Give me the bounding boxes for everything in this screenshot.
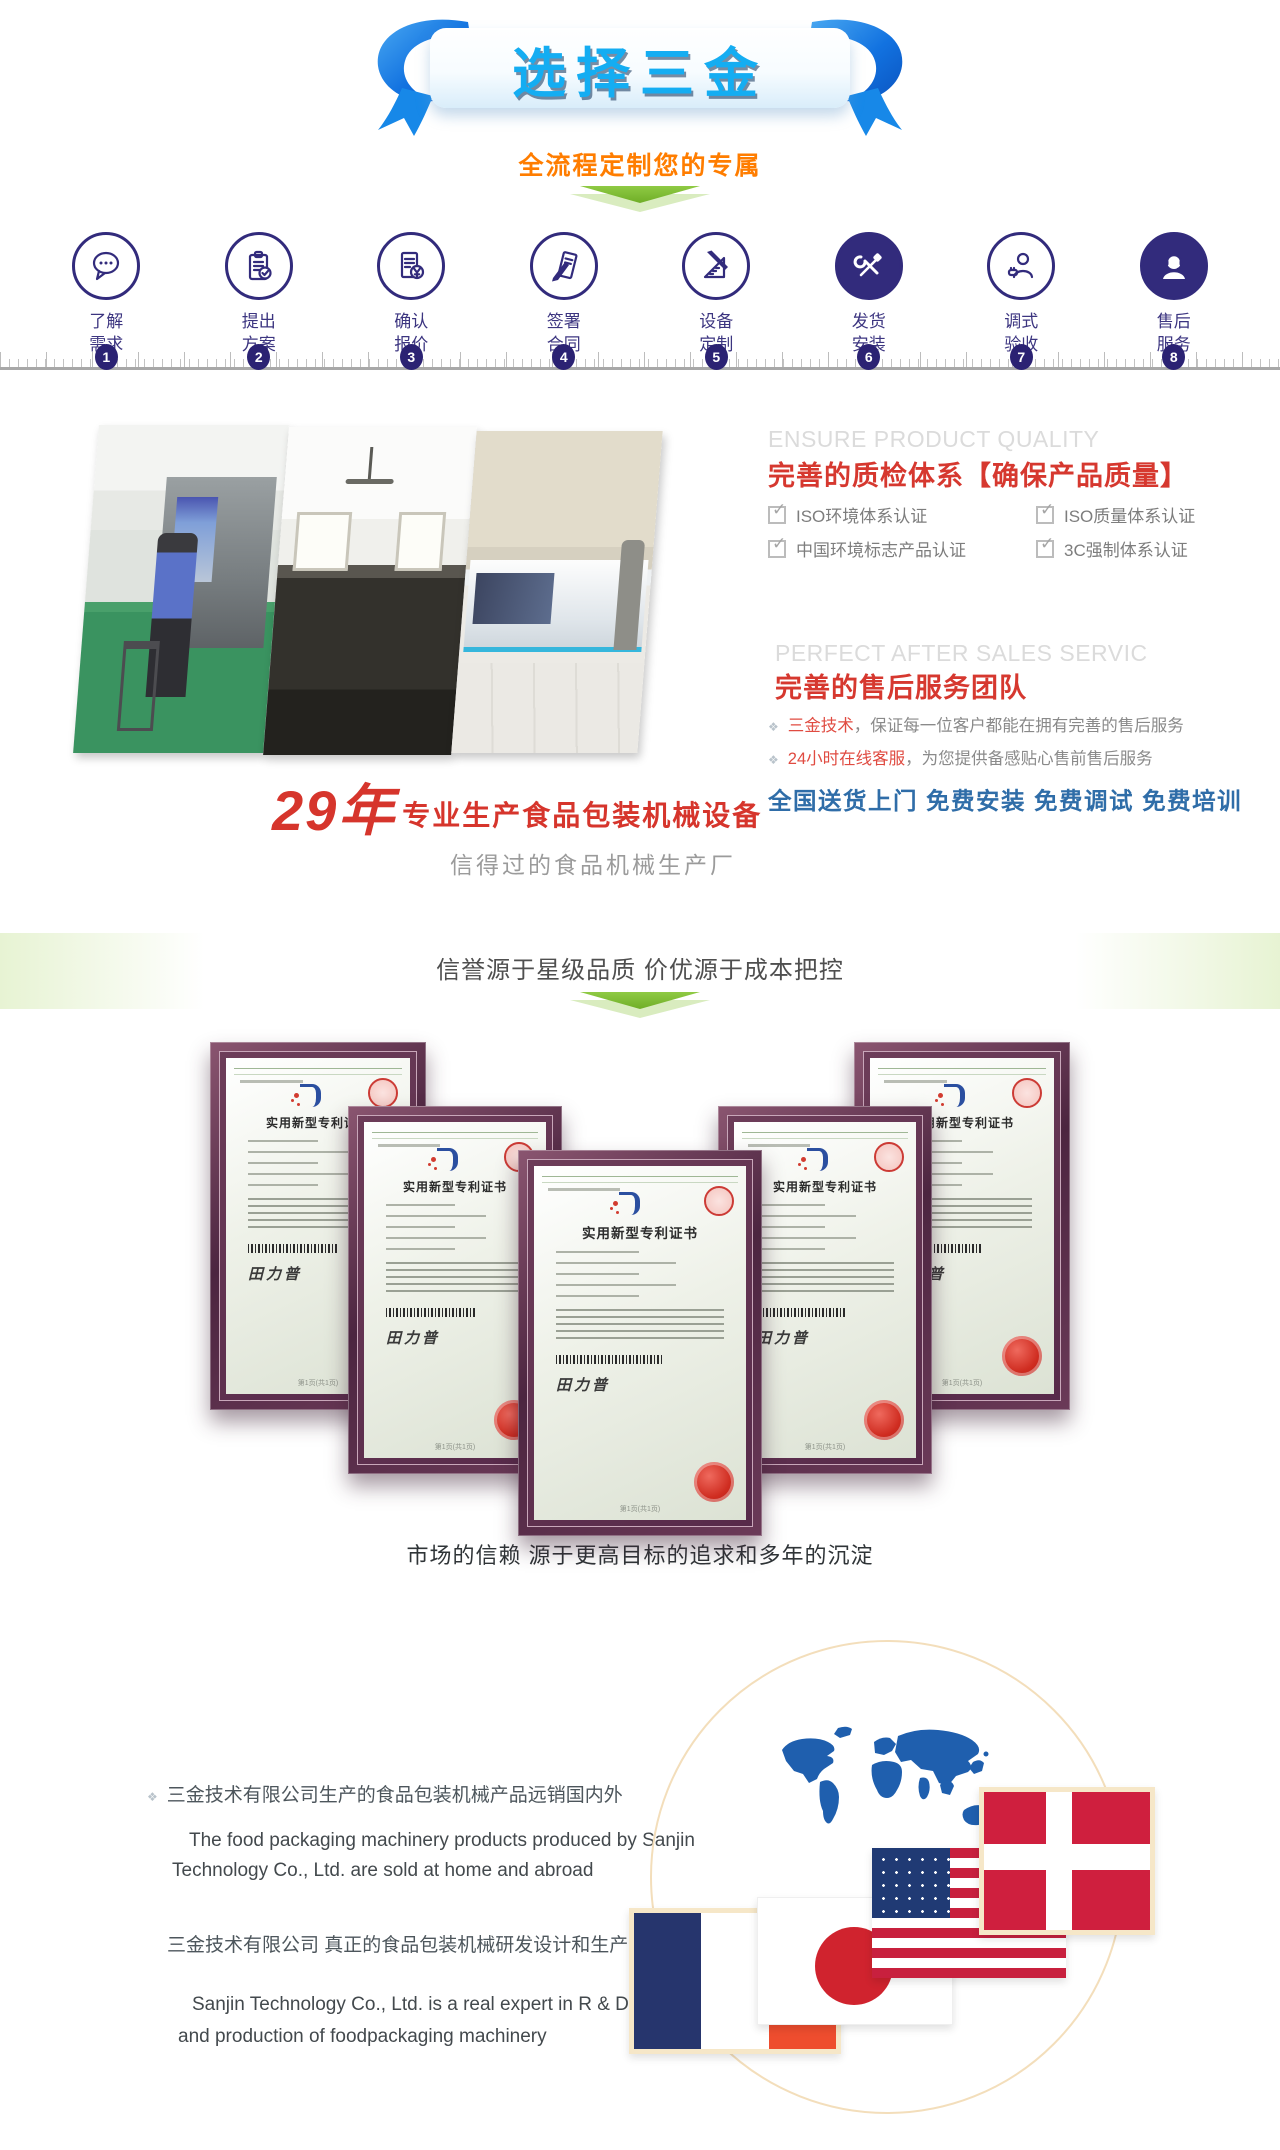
market-block-cn: 三金技术有限公司 真正的食品包装机械研发设计和生产制造专家: [167, 1930, 704, 1957]
market-block-en: and production of foodpackaging machiner…: [178, 2026, 547, 2048]
red-seal-icon: [874, 1142, 904, 1172]
chat-icon: [72, 232, 140, 300]
ruler-pencil-icon: [682, 232, 750, 300]
down-arrow-icon: [565, 186, 715, 212]
step-number: 1: [95, 344, 118, 370]
sipo-logo-icon: [944, 1084, 965, 1107]
banner-box: 选择三金: [430, 28, 850, 108]
step-sign-contract: 签署合同: [488, 232, 641, 356]
experience-line: 29年 专业生产食品包装机械设备: [272, 782, 762, 840]
red-seal-icon: [1002, 1336, 1042, 1376]
step-understand-needs: 了解需求: [30, 232, 183, 356]
sipo-logo-icon: [807, 1148, 828, 1171]
factory-photo-cnc-worker: [73, 425, 289, 753]
factory-photos: [78, 425, 653, 757]
market-heading: 市场的信赖 源于更高目标的追求和多年的沉淀: [0, 1538, 1280, 1570]
diamond-bullet-icon: ❖: [768, 720, 779, 734]
quality-cn-title: 完善的质检体系【确保产品质量】: [768, 454, 1188, 493]
checkbox-icon: [1036, 540, 1054, 558]
step-propose-plan: 提出方案: [183, 232, 336, 356]
quote-yen-icon: [377, 232, 445, 300]
step-number: 4: [552, 344, 575, 370]
checkbox-icon: [1036, 506, 1054, 524]
service-cn-title: 完善的售后服务团队: [775, 666, 1027, 705]
clipboard-check-icon: [225, 232, 293, 300]
cert-item: ISO质量体系认证: [1036, 502, 1195, 527]
landing-page: 选择三金 全流程定制您的专属 了解需求 提出方案: [0, 0, 1280, 2150]
market-block-en: Sanjin Technology Co., Ltd. is a real ex…: [192, 1994, 695, 2016]
cert-item: 3C强制体系认证: [1036, 536, 1188, 561]
sipo-logo-icon: [300, 1084, 321, 1107]
step-number-badges: 1 2 3 4 5 6 7 8: [30, 344, 1250, 370]
red-seal-icon: [1012, 1078, 1042, 1108]
denmark-flag: [979, 1787, 1155, 1935]
sipo-logo-icon: [619, 1192, 640, 1215]
sign-pen-icon: [530, 232, 598, 300]
checkbox-icon: [768, 506, 786, 524]
step-number: 7: [1010, 344, 1033, 370]
step-confirm-quote: 确认报价: [335, 232, 488, 356]
diamond-bullet-icon: ❖: [768, 753, 779, 767]
market-block-cn: ❖三金技术有限公司生产的食品包装机械产品远销国内外: [147, 1780, 623, 1807]
tools-icon: [835, 232, 903, 300]
service-item: ❖24小时在线客服，为您提供备感贴心售前售后服务: [768, 745, 1153, 769]
step-equipment-custom: 设备定制: [640, 232, 793, 356]
headset-icon: [1140, 232, 1208, 300]
years-number: 29年: [272, 782, 396, 840]
cert-item: 中国环境标志产品认证: [768, 536, 994, 561]
step-number: 2: [247, 344, 270, 370]
page-title: 选择三金: [512, 29, 768, 108]
service-highlight: 全国送货上门 免费安装 免费调试 免费培训: [768, 782, 1242, 816]
market-block-en: Technology Co., Ltd. are sold at home an…: [172, 1860, 593, 1882]
cert-row-2: 中国环境标志产品认证 3C强制体系认证: [768, 536, 1188, 561]
barcode: [248, 1244, 338, 1253]
red-seal-icon: [368, 1078, 398, 1108]
quality-en-title: ENSURE PRODUCT QUALITY: [768, 426, 1099, 453]
service-en-title: PERFECT AFTER SALES SERVIC: [775, 640, 1148, 667]
barcode: [756, 1308, 845, 1317]
red-seal-icon: [864, 1400, 904, 1440]
barcode: [556, 1355, 663, 1364]
service-item: ❖三金技术，保证每一位客户都能在拥有完善的售后服务: [768, 712, 1184, 736]
step-debug-accept: 调式验收: [945, 232, 1098, 356]
step-number: 3: [400, 344, 423, 370]
market-block-en: The food packaging machinery products pr…: [189, 1830, 695, 1852]
experience-title: 专业生产食品包装机械设备: [402, 794, 762, 840]
step-number: 6: [857, 344, 880, 370]
experience-subtitle: 信得过的食品机械生产厂: [450, 846, 736, 880]
process-steps: 了解需求 提出方案 确认报价: [30, 232, 1250, 356]
checkbox-icon: [768, 540, 786, 558]
step-ship-install: 发货安装: [793, 232, 946, 356]
step-number: 5: [705, 344, 728, 370]
cert-item: ISO环境体系认证: [768, 502, 994, 527]
red-seal-icon: [704, 1186, 734, 1216]
factory-photo-edm-machine: [263, 427, 477, 755]
barcode: [386, 1308, 475, 1317]
down-arrow-icon: [565, 992, 715, 1018]
patent-certificate: 实用新型专利证书 田力普 第1页(共1页): [518, 1150, 762, 1536]
cert-section-heading: 信誉源于星级品质 价优源于成本把控: [0, 950, 1280, 985]
banner-subtitle: 全流程定制您的专属: [0, 146, 1280, 182]
cert-row-1: ISO环境体系认证 ISO质量体系认证: [768, 502, 1195, 527]
step-number: 8: [1162, 344, 1185, 370]
step-after-sales: 售后服务: [1098, 232, 1251, 356]
inspector-icon: [987, 232, 1055, 300]
red-seal-icon: [694, 1462, 734, 1502]
title-banner: 选择三金: [340, 8, 940, 140]
diamond-bullet-icon: ❖: [147, 1790, 158, 1804]
sipo-logo-icon: [437, 1148, 458, 1171]
factory-photo-laser-cutter: [451, 431, 662, 753]
